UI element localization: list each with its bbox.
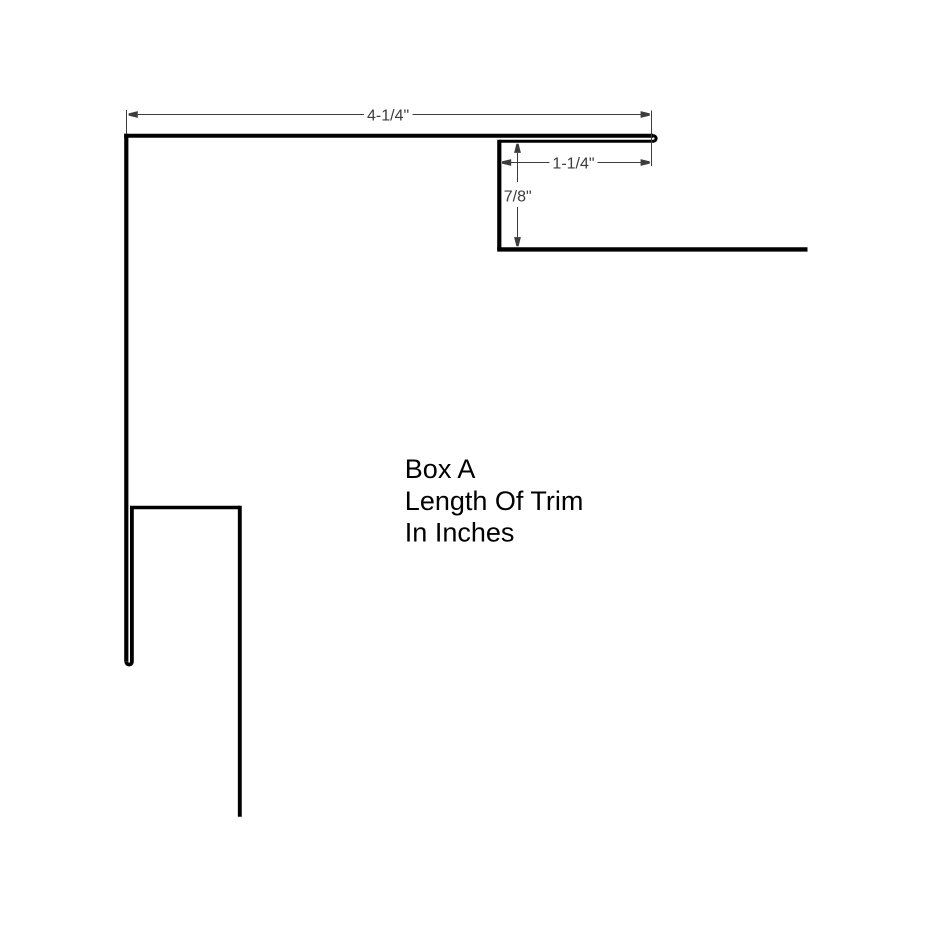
svg-text:4-1/4": 4-1/4" <box>367 108 409 125</box>
svg-text:1-1/4": 1-1/4" <box>552 156 594 173</box>
svg-text:Box A: Box A <box>405 454 476 484</box>
svg-text:Length Of Trim: Length Of Trim <box>405 486 584 516</box>
svg-text:In Inches: In Inches <box>405 517 515 547</box>
svg-text:7/8": 7/8" <box>504 189 532 206</box>
